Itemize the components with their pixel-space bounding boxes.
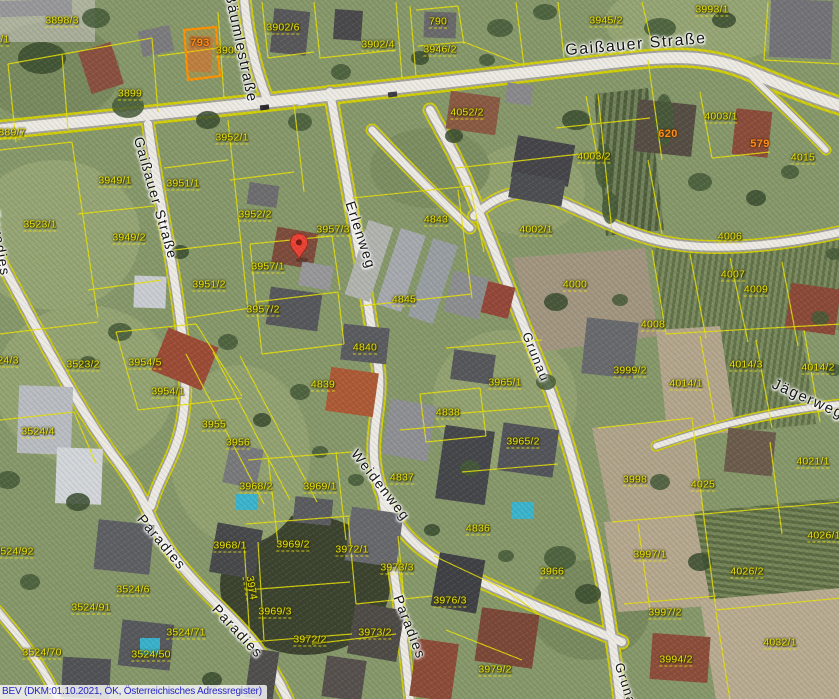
parcel-label: 3898/3 [45,15,78,28]
parcel-label: 4014/3 [729,359,762,372]
street-label: Paradies [134,511,189,573]
parcel-label: 3973/3 [380,562,413,575]
address-label: 579 [750,138,770,150]
parcel-label: 3952/2 [238,209,271,222]
parcel-label: 3997/1 [633,549,666,562]
parcel-label: 3993/1 [695,4,728,17]
address-label: 620 [658,128,678,140]
parcel-label: 3946/2 [423,44,456,57]
parcel-label: /1 [0,34,9,47]
parcel-label: 3945/2 [589,15,622,28]
parcel-label: 3973/2 [358,627,391,640]
street-label: Paradies [390,593,429,662]
parcel-label: 4026/1 [807,530,839,543]
parcel-label: 24/3 [0,355,19,368]
parcel-label: 3523/1 [23,219,56,232]
parcel-label: 3955 [202,419,226,432]
parcel-label: 4026/2 [730,566,763,579]
parcel-label: 4052/2 [450,107,483,120]
parcel-label: 4839 [311,379,335,392]
parcel-label: 4015 [791,152,815,165]
parcel-label: 4845 [392,294,416,307]
parcel-label: 3974 [243,575,260,601]
parcel-label: 4014/2 [801,362,834,375]
parcel-label: 3949/2 [112,232,145,245]
parcel-label: 3972/2 [293,634,326,647]
parcel-label: 3951/2 [192,279,225,292]
parcel-label: 3524/4 [21,426,54,439]
parcel-label: 4003/2 [577,151,610,164]
parcel-label: 3954/1 [151,386,184,399]
parcel-label: 3952/1 [215,132,248,145]
parcel-label: 4009 [744,284,768,297]
map-labels-layer: 3898/3/13899889/739003902/63902/43946/27… [0,0,839,699]
attribution: BEV (DKM:01.10.2021, ÖK, Österreichische… [0,685,267,699]
street-label: Grunau [519,330,553,384]
parcel-label: 4025 [691,479,715,492]
parcel-label: 4836 [466,523,490,536]
parcel-label: 3524/6 [116,584,149,597]
street-label: Jägerweg [769,376,839,423]
parcel-label: 3994/2 [659,654,692,667]
parcel-label: 4000 [563,279,587,292]
parcel-label: 4008 [641,319,665,332]
parcel-label: 3968/2 [239,481,272,494]
parcel-label: 4006 [718,231,742,244]
street-label: Gaißauer Straße [565,30,708,60]
parcel-label: 4007 [721,269,745,282]
parcel-label: 3965/2 [506,436,539,449]
parcel-label: 790 [429,16,447,29]
parcel-label: 3524/70 [22,647,61,660]
parcel-label: 3524/91 [71,602,110,615]
parcel-label: 3969/1 [303,481,336,494]
parcel-label: 4837 [390,472,414,485]
parcel-label: 4003/1 [704,111,737,124]
parcel-label: 3902/6 [266,22,299,35]
parcel-label: 3524/50 [131,649,170,662]
parcel-label: 4838 [436,407,460,420]
parcel-label: 3999/2 [613,365,646,378]
parcel-label: 3899 [118,88,142,101]
street-label: Paradies [0,208,14,277]
parcel-label: 3965/1 [488,377,521,390]
street-label: Grunau [612,661,642,699]
parcel-label: 3954/5 [128,357,161,370]
parcel-label: 3957/1 [251,261,284,274]
parcel-label: 3997/2 [648,607,681,620]
parcel-label: 4002/1 [519,224,552,237]
parcel-label: 3902/4 [361,39,394,52]
map-canvas[interactable]: 3898/3/13899889/739003902/63902/43946/27… [0,0,839,699]
parcel-label: 3968/1 [213,540,246,553]
parcel-label: 3972/1 [335,544,368,557]
parcel-label: 4014/1 [669,378,702,391]
parcel-label: 3957/2 [246,304,279,317]
parcel-label: 4021/1 [796,456,829,469]
street-label: Weidenweg [348,446,414,524]
parcel-label: 3951/1 [166,178,199,191]
parcel-label: 4843 [424,214,448,227]
parcel-label: 3524/71 [166,627,205,640]
parcel-label: 4032/1 [763,637,796,650]
parcel-label: 3957/3 [316,224,349,237]
parcel-label: 3524/92 [0,546,34,559]
parcel-label: 3969/3 [258,606,291,619]
parcel-label: 3976/3 [433,595,466,608]
parcel-label: 3998 [623,474,647,487]
parcel-label: 3966 [540,566,564,579]
parcel-label: 3949/1 [98,175,131,188]
parcel-label: 3979/2 [478,664,511,677]
address-label: 793 [190,37,210,49]
parcel-label: 4840 [353,342,377,355]
parcel-label: 3523/2 [66,359,99,372]
parcel-label: 3956 [226,437,250,450]
parcel-label: 3969/2 [276,539,309,552]
parcel-label: 889/7 [0,127,26,140]
